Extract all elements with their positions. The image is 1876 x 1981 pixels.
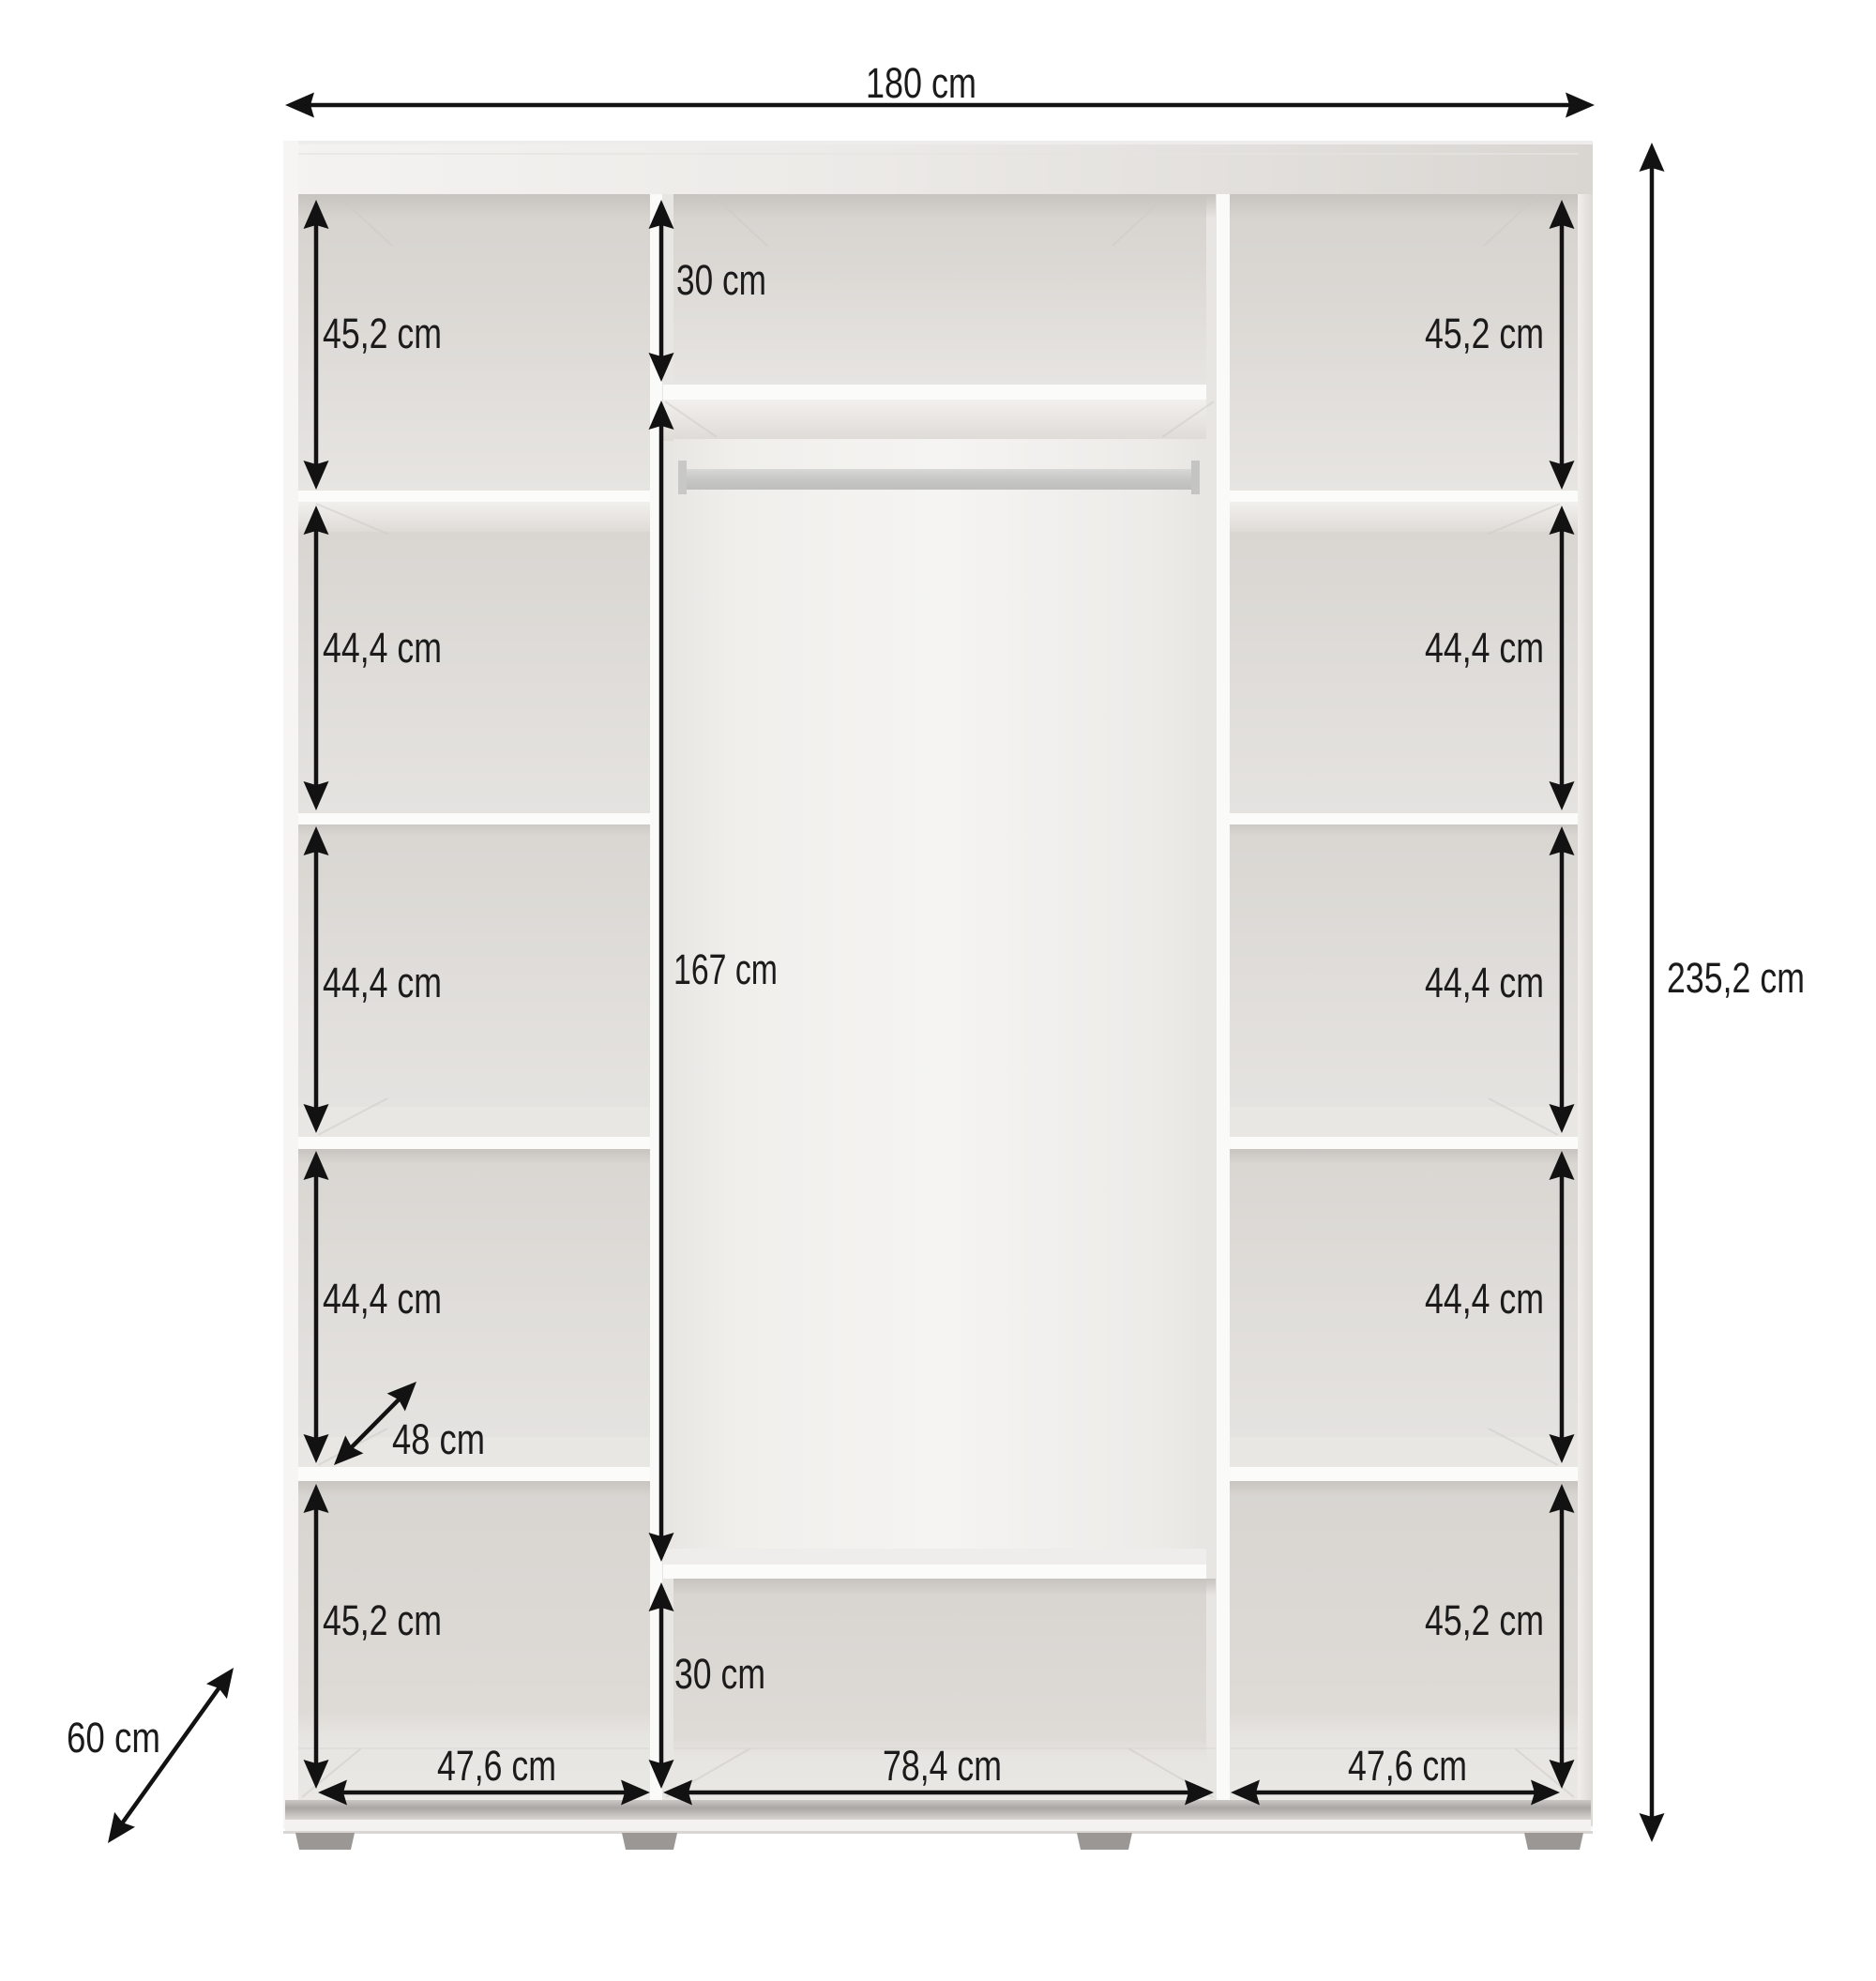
svg-text:45,2 cm: 45,2 cm [1425, 1596, 1544, 1644]
svg-text:44,4 cm: 44,4 cm [323, 1275, 442, 1323]
svg-text:48 cm: 48 cm [392, 1415, 485, 1463]
svg-text:45,2 cm: 45,2 cm [1425, 310, 1544, 357]
svg-text:60 cm: 60 cm [67, 1714, 160, 1762]
svg-text:30 cm: 30 cm [676, 256, 766, 304]
svg-text:30 cm: 30 cm [674, 1650, 765, 1698]
svg-text:180 cm: 180 cm [866, 59, 976, 107]
svg-text:44,4 cm: 44,4 cm [1425, 624, 1544, 672]
svg-text:235,2 cm: 235,2 cm [1667, 954, 1805, 1002]
svg-text:44,4 cm: 44,4 cm [323, 959, 442, 1006]
svg-text:44,4 cm: 44,4 cm [1425, 1275, 1544, 1323]
svg-text:45,2 cm: 45,2 cm [323, 1596, 442, 1644]
svg-text:45,2 cm: 45,2 cm [323, 310, 442, 357]
svg-text:78,4 cm: 78,4 cm [883, 1742, 1002, 1790]
svg-text:44,4 cm: 44,4 cm [323, 624, 442, 672]
svg-text:44,4 cm: 44,4 cm [1425, 959, 1544, 1006]
svg-text:47,6 cm: 47,6 cm [1348, 1742, 1467, 1790]
svg-text:167 cm: 167 cm [673, 945, 778, 993]
svg-text:47,6 cm: 47,6 cm [437, 1742, 556, 1790]
